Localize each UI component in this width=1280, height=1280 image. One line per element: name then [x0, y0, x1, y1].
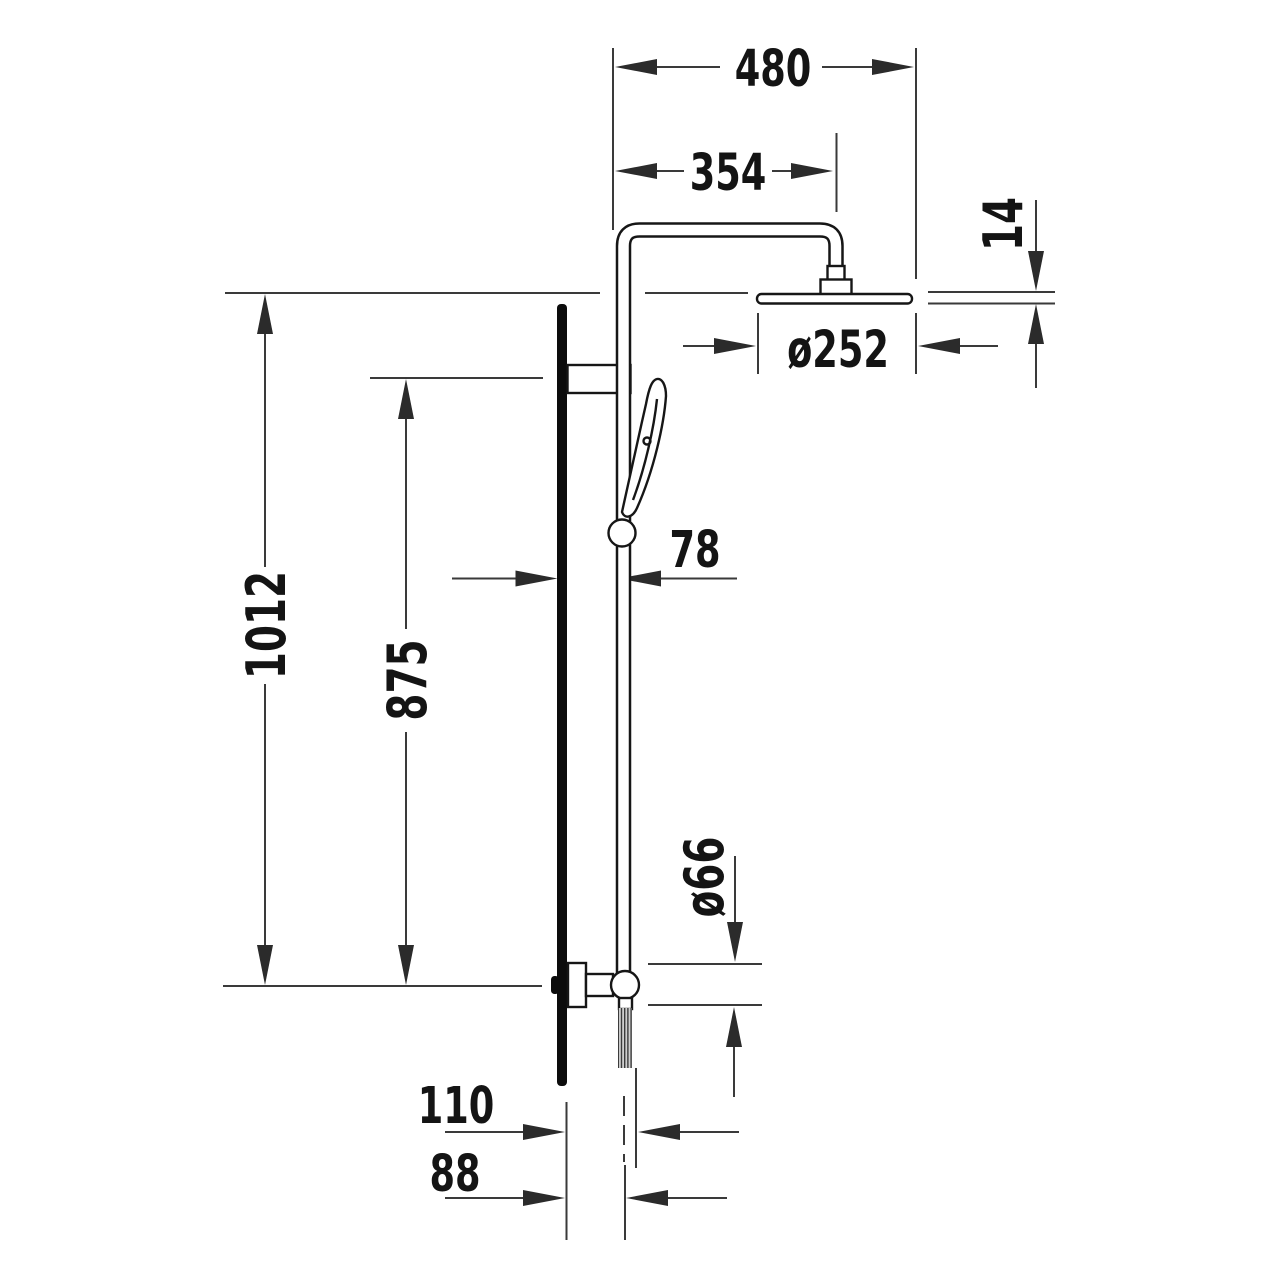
wall-fixing-nub — [551, 976, 559, 994]
dimension-rail-height: 875 — [377, 379, 440, 985]
dimension-label-66: ø66 — [674, 837, 737, 918]
shower-column-dimension-drawing: 480 354 14 ø252 78 1012 — [0, 0, 1280, 1280]
dimension-label-110: 110 — [418, 1077, 495, 1136]
dimension-arm-projection: 354 — [615, 144, 833, 203]
head-connector-flange — [821, 280, 852, 295]
hose-nut — [619, 998, 632, 1009]
dimension-label-1012: 1012 — [236, 571, 299, 679]
head-connector-upper — [828, 266, 845, 280]
rail-slider — [609, 520, 636, 547]
dimension-overall-height: 1012 — [236, 294, 299, 985]
valve-knob — [611, 971, 639, 999]
technical-drawing-canvas: 480 354 14 ø252 78 1012 — [0, 0, 1280, 1280]
dimension-label-88: 88 — [429, 1145, 480, 1204]
dimension-label-252: ø252 — [787, 321, 889, 380]
dimension-label-875: 875 — [377, 639, 440, 720]
dimension-wall-to-rail: 78 — [452, 521, 737, 586]
wall-panel — [557, 304, 567, 1086]
reference-lines — [223, 292, 1055, 1162]
valve-wall-plate — [568, 963, 586, 1007]
dimension-label-480: 480 — [735, 40, 812, 99]
dimension-overall-width: 480 — [615, 40, 914, 99]
dimension-bottom-offset-outer: 110 — [418, 1077, 739, 1140]
overhead-shower-plate — [757, 294, 912, 304]
dimension-label-78: 78 — [669, 521, 720, 580]
valve-assembly — [568, 963, 639, 1068]
dimension-label-354: 354 — [690, 144, 767, 203]
dimension-valve-diameter: ø66 — [674, 837, 743, 1097]
valve-connector — [586, 974, 613, 996]
dimension-bottom-offset-inner: 88 — [429, 1145, 727, 1206]
dimension-label-14: 14 — [973, 197, 1036, 251]
dimension-head-diameter: ø252 — [683, 321, 998, 380]
shower-hose — [618, 1008, 632, 1068]
